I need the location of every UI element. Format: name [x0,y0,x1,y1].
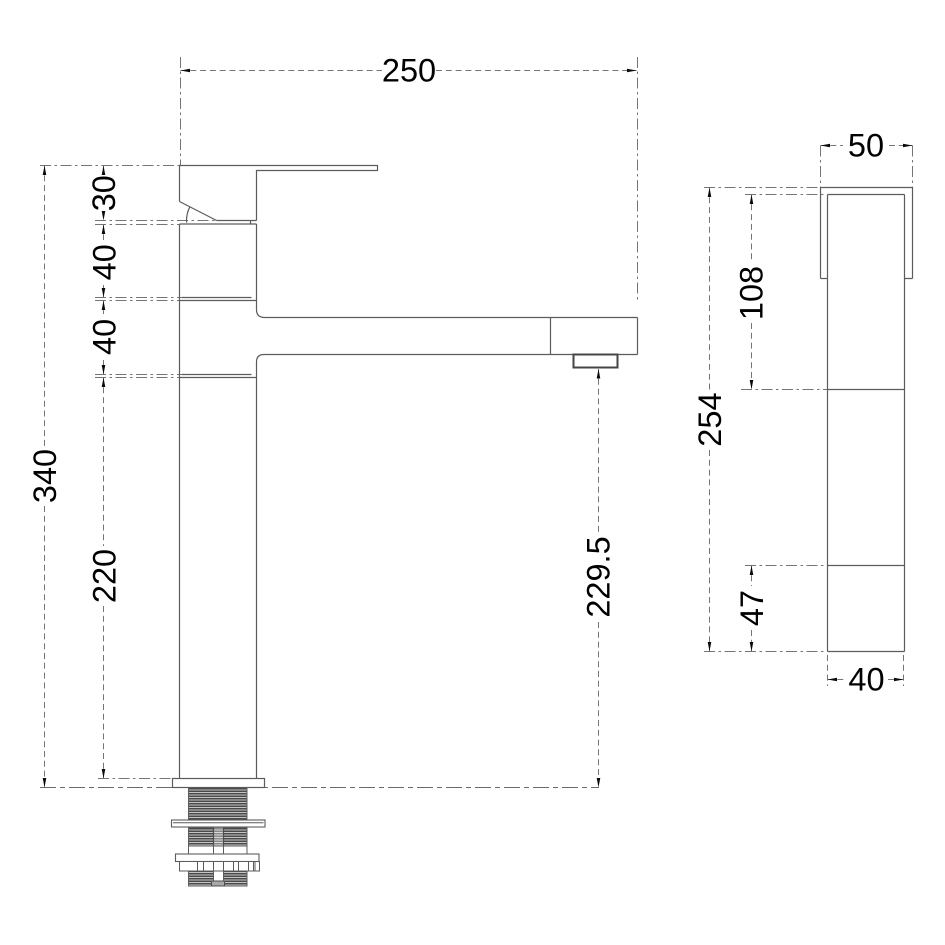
svg-text:40: 40 [87,319,123,355]
svg-text:50: 50 [848,128,884,164]
svg-text:40: 40 [87,244,123,280]
svg-text:40: 40 [848,662,884,698]
svg-text:254: 254 [692,392,728,446]
svg-text:250: 250 [382,53,436,89]
svg-text:220: 220 [86,549,122,603]
svg-text:229.5: 229.5 [581,536,617,617]
svg-text:108: 108 [733,266,769,320]
svg-text:30: 30 [86,175,122,211]
svg-text:47: 47 [734,590,770,626]
svg-text:340: 340 [27,449,63,503]
